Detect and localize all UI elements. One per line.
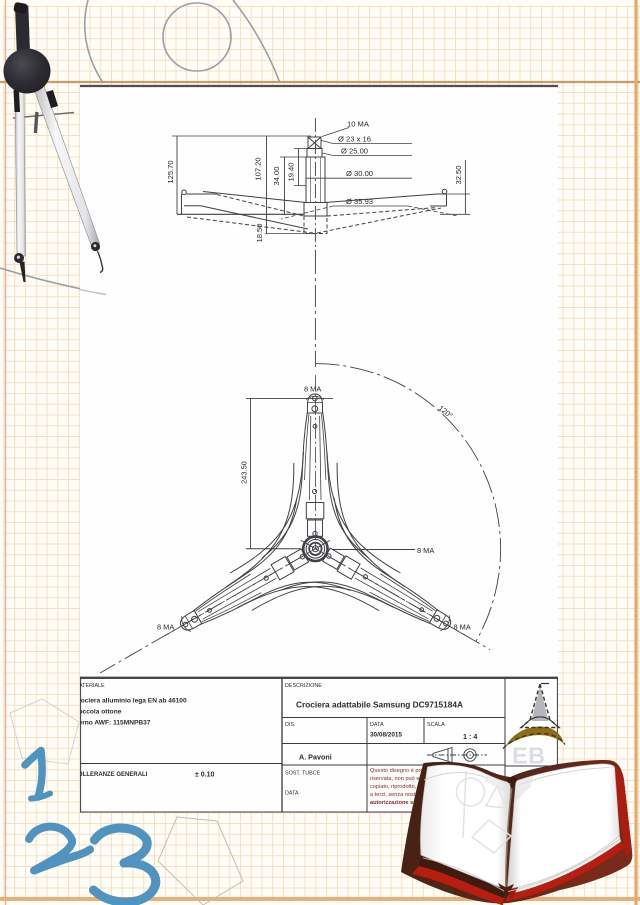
svg-text:18.50: 18.50	[255, 223, 264, 242]
svg-text:8 MA: 8 MA	[417, 546, 434, 555]
svg-text:EB: EB	[512, 743, 546, 769]
svg-text:243.50: 243.50	[240, 461, 249, 484]
svg-text:125.70: 125.70	[166, 160, 175, 183]
svg-text:30/08/2015: 30/08/2015	[370, 732, 402, 739]
svg-text:DATA: DATA	[370, 722, 384, 728]
svg-text:8 MA: 8 MA	[157, 623, 174, 632]
svg-text:Ø 25.00: Ø 25.00	[341, 147, 368, 156]
svg-text:crociera alluminio lega EN ab: crociera alluminio lega EN ab 46100	[75, 698, 187, 705]
svg-text:10 MA: 10 MA	[347, 120, 370, 129]
svg-text:SCALA: SCALA	[427, 722, 445, 728]
svg-text:a terzi, senza nostra: a terzi, senza nostra	[370, 792, 421, 798]
svg-text:32.50: 32.50	[454, 165, 463, 184]
svg-text:8 MA: 8 MA	[454, 623, 471, 632]
svg-text:Crociera adattabile Samsung DC: Crociera adattabile Samsung DC9715184A	[296, 700, 463, 710]
svg-text:Ø 30.00: Ø 30.00	[346, 169, 373, 178]
svg-text:1 : 4: 1 : 4	[463, 732, 477, 741]
svg-text:perno AWF: 115MNPB37: perno AWF: 115MNPB37	[75, 720, 151, 727]
svg-text:DESCRIZIONE: DESCRIZIONE	[285, 683, 322, 689]
svg-text:boccola ottone: boccola ottone	[75, 709, 122, 716]
svg-text:Ø 23 x 16: Ø 23 x 16	[338, 135, 371, 144]
svg-text:107.20: 107.20	[254, 157, 263, 180]
svg-text:8 MA: 8 MA	[304, 385, 321, 394]
svg-text:19.40: 19.40	[287, 162, 296, 181]
svg-text:DIS.: DIS.	[285, 722, 295, 728]
svg-text:A. Pavoni: A. Pavoni	[299, 753, 332, 762]
svg-text:SOST. TUBCE: SOST. TUBCE	[285, 771, 321, 777]
svg-text:TOLLERANZE GENERALI: TOLLERANZE GENERALI	[75, 772, 148, 778]
svg-text:34.00: 34.00	[272, 166, 281, 185]
svg-text:± 0.10: ± 0.10	[195, 772, 215, 779]
svg-text:Ø 35.93: Ø 35.93	[346, 197, 373, 206]
svg-text:DATA: DATA	[285, 791, 299, 797]
